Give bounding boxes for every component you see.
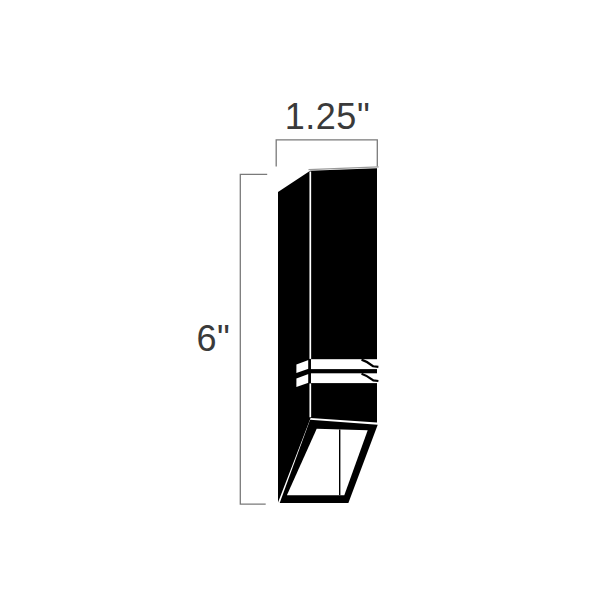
height-dimension: 6" (197, 174, 268, 504)
width-dimension-label: 1.25" (285, 96, 370, 137)
fixture-dimension-drawing: 1.25" 6" (0, 0, 600, 600)
louver-corner-break (308, 359, 310, 383)
louver-slot-2 (311, 373, 378, 383)
width-dimension-line (276, 140, 377, 167)
dimension-diagram-canvas: 1.25" 6" (0, 0, 600, 600)
louver-slot-1 (311, 359, 378, 369)
fixture-silhouette (278, 167, 379, 503)
width-dimension: 1.25" (276, 96, 377, 167)
height-dimension-label: 6" (197, 318, 231, 359)
height-dimension-line (240, 174, 267, 504)
